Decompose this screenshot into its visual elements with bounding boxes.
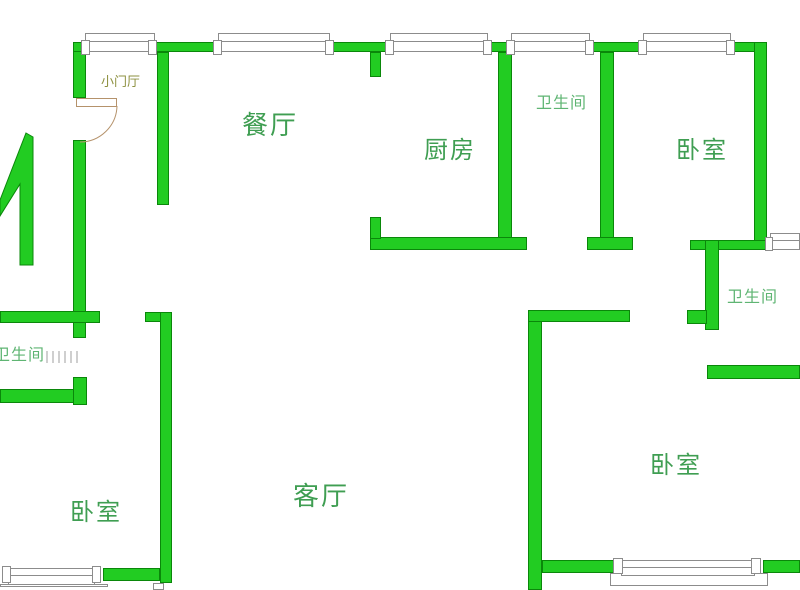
wall-outer-left-lower (73, 140, 86, 338)
slide-door-tick (70, 351, 72, 363)
window-cap (751, 558, 761, 574)
window-foyer (85, 33, 155, 52)
room-label-bedroom-bottom-right: 卧室 (650, 454, 702, 478)
window-cap (92, 566, 101, 583)
window-cap (765, 237, 773, 251)
wall-bedroom-tr-right (754, 42, 767, 250)
slide-door-tick (64, 351, 66, 363)
window-cap (506, 40, 515, 55)
window-cap (385, 40, 394, 55)
window-dining (218, 33, 330, 52)
window-cap (325, 40, 334, 55)
window-bedroom-tr (643, 33, 731, 52)
wall-bedroom-tr-bottom (690, 240, 772, 250)
window-cap (81, 40, 90, 55)
slide-door-tick (52, 351, 54, 363)
wall-kitchen-left-stub (370, 52, 381, 77)
wall-living-right-top (528, 310, 630, 322)
room-label-bathroom-right: 卫生间 (727, 290, 778, 306)
slide-door-tick (58, 351, 60, 363)
wall-bathroom-right-stub (687, 310, 707, 324)
angled-wall-mark-icon (0, 130, 40, 270)
window-cap (585, 40, 594, 55)
wall-bedroom-br-bottom-l (542, 560, 615, 573)
room-label-bathroom-left: 卫生间 (0, 348, 45, 364)
window-cap (483, 40, 492, 55)
slide-door-tick (46, 351, 48, 363)
wall-bathroom-top-base (587, 237, 633, 250)
wall-kitchen-right (498, 52, 512, 250)
window-cap (638, 40, 647, 55)
wall-living-right (528, 310, 542, 590)
window-bedroom-bl (8, 568, 95, 585)
room-label-living: 客厅 (293, 483, 349, 509)
room-label-bedroom-bottom-left: 卧室 (70, 501, 122, 525)
slide-door-tick (76, 351, 78, 363)
wall-bathroom-right-left (705, 240, 719, 330)
room-label-bathroom-top: 卫生间 (536, 96, 587, 112)
window-cap (2, 566, 11, 583)
window-cap (613, 558, 623, 574)
wall-kitchen-bottom (370, 237, 527, 250)
wall-bedroom-bl-right (160, 312, 172, 583)
window-cap (153, 583, 164, 590)
window-kitchen (390, 33, 488, 52)
wall-bathroom-top-right (600, 52, 614, 250)
window-bathroom-top (511, 33, 590, 52)
wall-bathroom-left-stub (73, 377, 87, 405)
window-bedroom-br (621, 560, 755, 576)
room-label-kitchen: 厨房 (424, 139, 476, 163)
window-right-edge (770, 233, 800, 250)
room-label-dining: 餐厅 (242, 112, 298, 138)
room-label-foyer: 小门厅 (101, 75, 140, 88)
window-cap (148, 40, 157, 55)
wall-foyer-right (157, 52, 169, 205)
wall-bedroom-br-bottom-r (763, 560, 800, 573)
entry-door-leaf (76, 98, 117, 107)
wall-bedroom-bl-bottom (103, 568, 160, 581)
wall-bathroom-left-top (0, 311, 100, 323)
floor-plan-canvas: 小门厅 餐厅 厨房 卫生间 卧室 卫生间 卫生间 卧室 客厅 卧室 (0, 0, 800, 590)
wall-bathroom-right-bottom (707, 365, 800, 379)
room-label-bedroom-top-right: 卧室 (676, 139, 728, 163)
wall-kitchen-left-lower (370, 217, 381, 239)
window-cap (213, 40, 222, 55)
window-cap (726, 40, 735, 55)
